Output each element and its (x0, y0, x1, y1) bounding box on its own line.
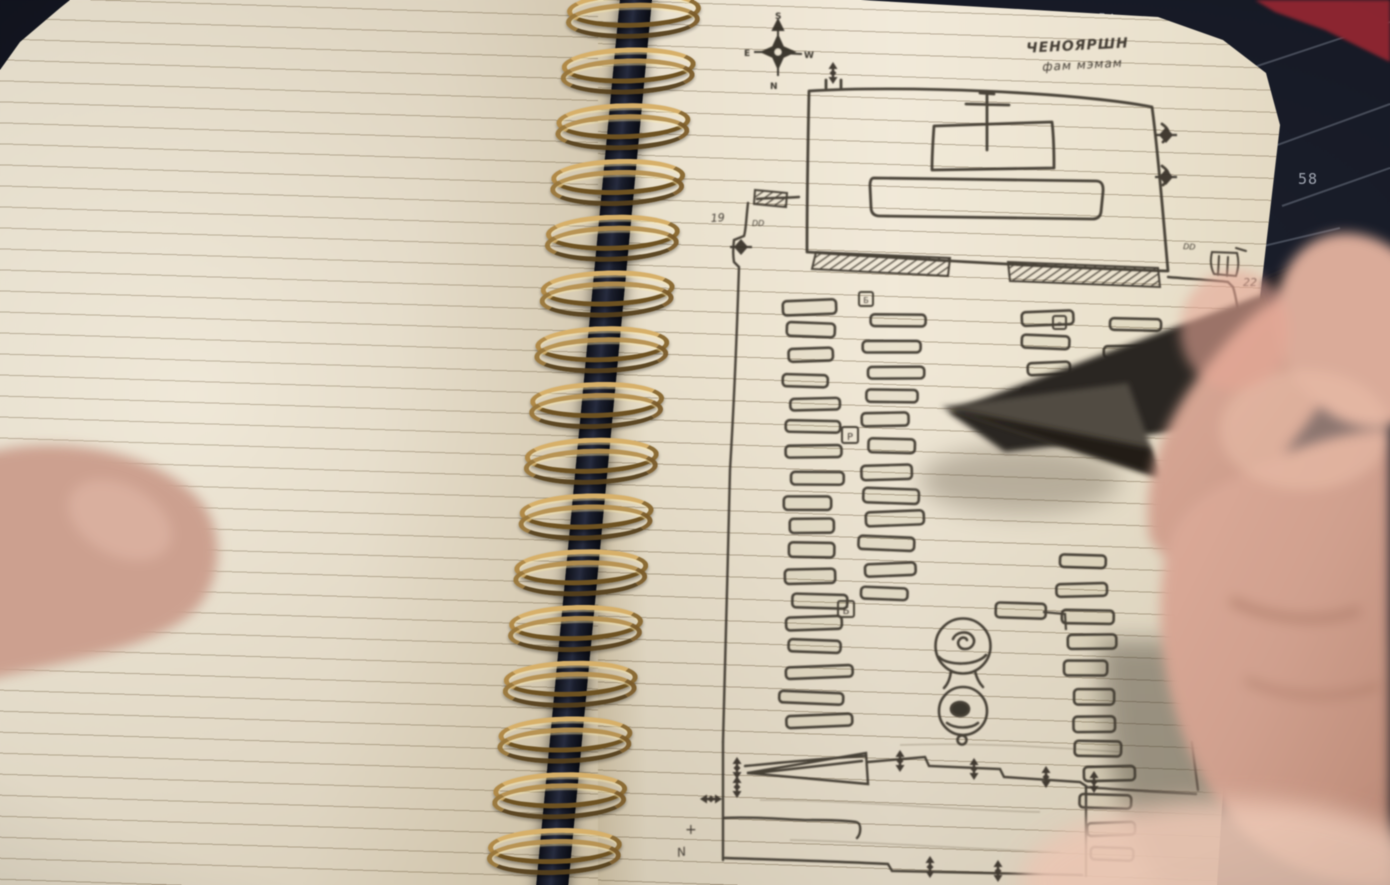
blurred-finger-bottom (1020, 800, 1390, 885)
photo-frame: 54 58 (0, 0, 1390, 885)
hand-and-pen (0, 0, 1390, 885)
pen-shadow (920, 446, 1120, 514)
pink-knuckle (1180, 270, 1290, 390)
left-thumb (0, 445, 218, 682)
